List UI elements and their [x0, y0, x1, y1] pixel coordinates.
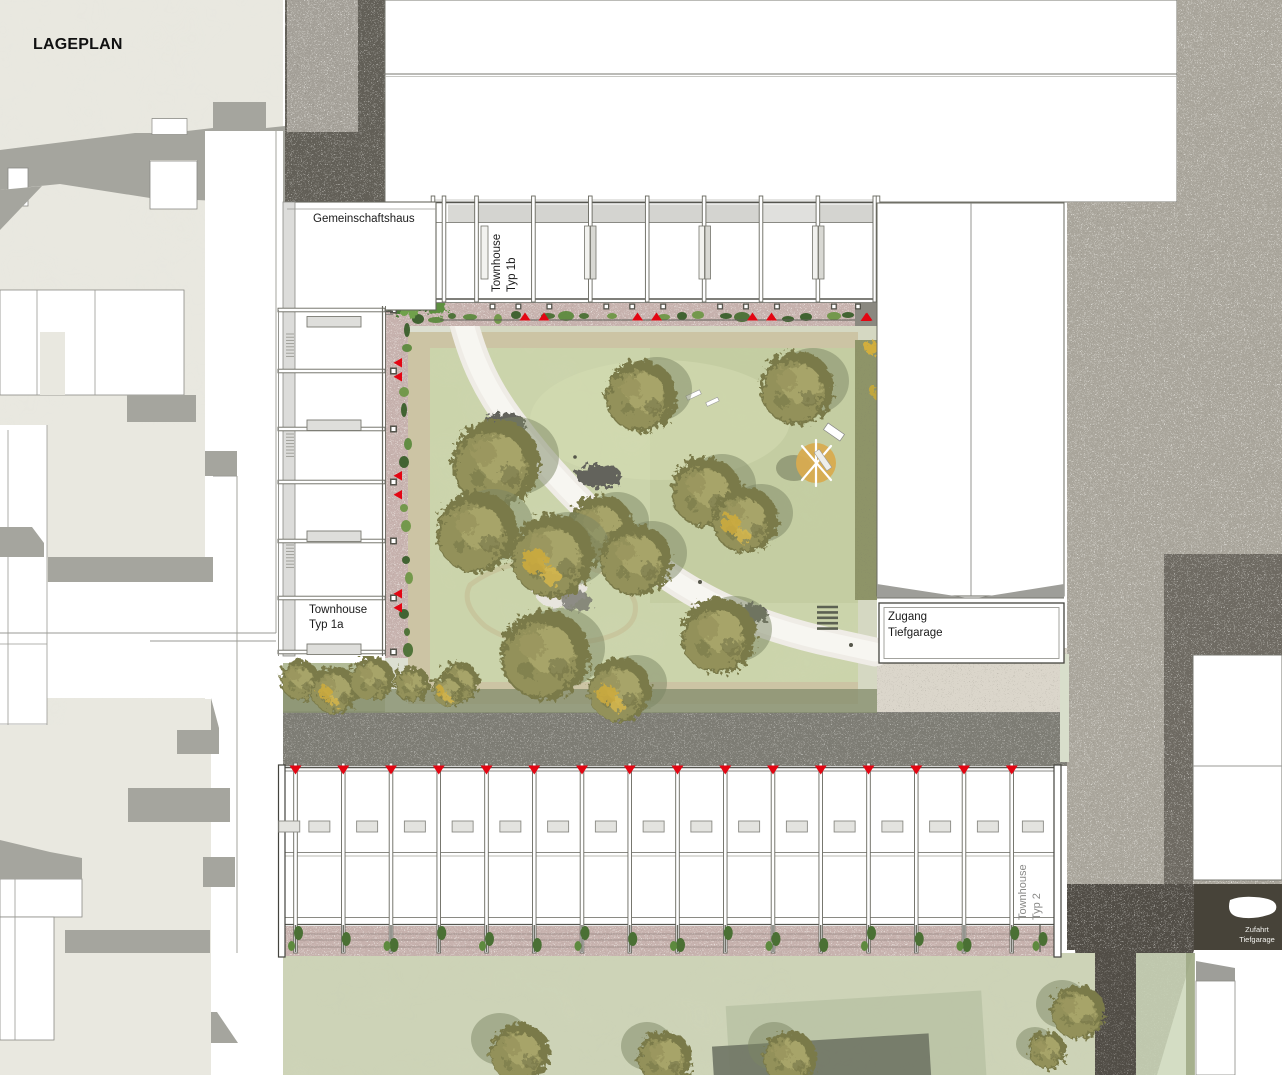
svg-text:LAGEPLAN: LAGEPLAN [33, 36, 123, 53]
svg-text:Typ 2: Typ 2 [1031, 893, 1043, 920]
svg-text:Tiefgarage: Tiefgarage [1239, 935, 1275, 944]
svg-text:Townhouse: Townhouse [309, 604, 367, 616]
svg-text:Gemeinschaftshaus: Gemeinschaftshaus [313, 213, 415, 225]
svg-text:Townhouse: Townhouse [1017, 864, 1029, 920]
svg-text:Zugang: Zugang [888, 611, 927, 623]
svg-text:Tiefgarage: Tiefgarage [888, 627, 943, 639]
svg-text:Townhouse: Townhouse [491, 234, 503, 292]
svg-text:Typ 1a: Typ 1a [309, 619, 344, 631]
svg-text:Zufahrt: Zufahrt [1245, 925, 1270, 934]
svg-text:Typ 1b: Typ 1b [506, 257, 518, 292]
